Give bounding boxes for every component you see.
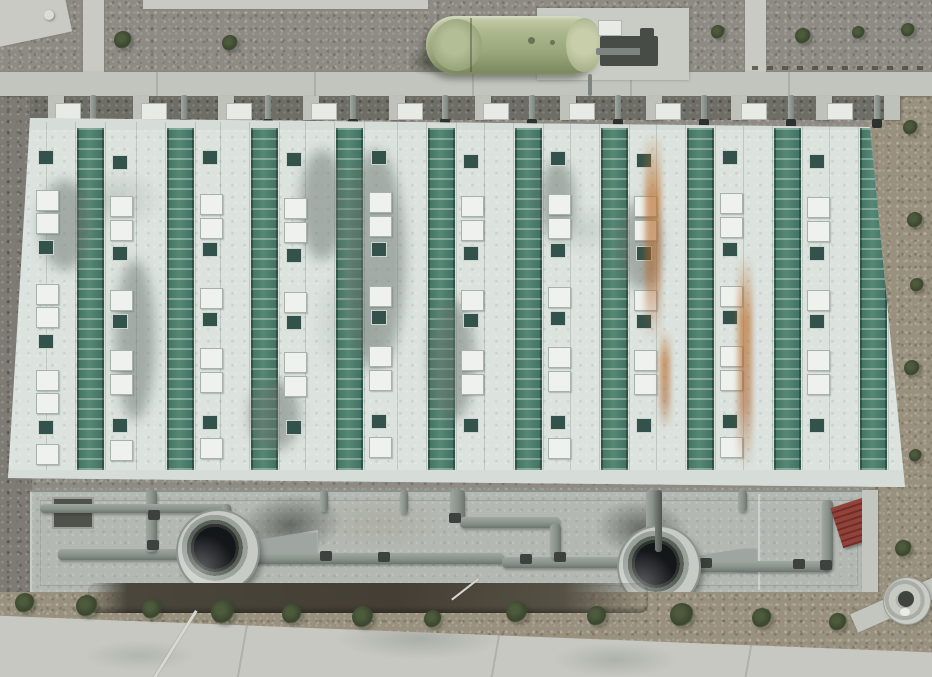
roof-vent [38,334,54,349]
roof-skylight [807,350,830,371]
pipe-joint [820,560,832,570]
equipment-box [598,20,622,36]
roof-skylight [200,348,223,369]
roof-skylight [36,370,59,391]
roof-vent [112,246,128,261]
shrub [910,278,924,292]
roof-skylight [36,307,59,328]
roof-vent [371,310,387,325]
roof-vent [371,242,387,257]
roof-vent [463,313,479,328]
manhole [884,578,930,624]
roof-green-stripe [687,128,714,474]
stone [44,10,54,20]
roof-vent [286,315,302,330]
corner-pad-path [0,0,72,48]
roof-vent [371,150,387,165]
tank-nozzle [550,40,555,45]
shrub [76,595,98,617]
roof-skylight [548,371,571,392]
roof-skylight [369,286,392,307]
pipe-joint [320,551,332,561]
roof-vent [38,420,54,435]
equipment-drop-pipe [588,74,592,96]
shrub [211,600,235,624]
roof-panel-seam [165,122,166,484]
shrub [909,449,922,462]
rooftop-panel [311,103,337,120]
roof-panel-seam [685,122,686,484]
roof-vent [722,242,738,257]
roof-vent [112,314,128,329]
tank-seam [470,18,472,72]
roof-skylight [548,347,571,368]
roof-green-stripe [515,128,542,474]
rooftop-panel [483,103,509,120]
roof-panel-seam [858,122,859,484]
roof-panel-seam [802,122,803,484]
roof-skylight [110,220,133,241]
rooftop-panel [827,103,853,120]
shrub [903,120,918,135]
shrub [795,28,811,44]
roof-skylight [461,290,484,311]
shrub [752,608,772,628]
roof-panel-seam [629,122,630,484]
roof-panel-seam [105,122,106,484]
roof-green-stripe [601,128,628,474]
roof-green-stripe [774,128,801,474]
walkway-pillar [884,96,900,120]
fan-over-pipe [655,490,662,552]
roof-vent [463,246,479,261]
pipe-segment [320,490,328,512]
roof-green-stripe [77,128,104,474]
roof-vent [809,314,825,329]
shrub [711,25,725,39]
roof-skylight [110,350,133,371]
shrub [587,606,607,626]
pipe-joint [148,510,160,520]
roof-panel-seam [75,122,76,484]
roof-skylight [200,288,223,309]
pipe-segment [738,490,747,512]
rooftop-panel [569,103,595,120]
roof-skylight [548,218,571,239]
fence-line [752,66,932,70]
pipe-joint [147,540,159,550]
vertical-path-left [83,0,104,76]
roof-skylight [369,437,392,458]
roof-vent [550,151,566,166]
pipe-elbow [872,119,882,128]
roof-skylight [284,292,307,313]
roof-skylight [461,196,484,217]
roof-vent [202,150,218,165]
roof-vent [286,248,302,263]
roof-skylight [369,370,392,391]
shrub [424,610,442,628]
roof-vent [550,243,566,258]
roof-skylight [200,372,223,393]
rooftop-panel [397,103,423,120]
shrub [904,360,920,376]
rooftop-panel [741,103,767,120]
roof-green-stripe [167,128,194,474]
roof-skylight [369,346,392,367]
roof-eave-bottom [8,470,905,490]
roof-vent [809,418,825,433]
shrub [852,26,865,39]
roof-vent [809,246,825,261]
tank-nozzle [528,37,535,44]
roof-panel-seam [249,122,250,484]
shrub [901,23,915,37]
rust-stain [645,132,661,342]
roof-vent [202,242,218,257]
tank-end-right [566,18,602,72]
shrub [352,606,374,628]
roof-panel-seam [599,122,600,484]
roof-stain [115,260,155,420]
roof-skylight [200,438,223,459]
roof-skylight [807,197,830,218]
roof-vent [371,414,387,429]
shrub [907,212,923,228]
vertical-path-right [745,0,766,76]
roof-skylight [110,196,133,217]
rooftop-panel [655,103,681,120]
roof-vent [722,310,738,325]
pipe-segment [695,561,830,572]
walkway-path [0,72,932,96]
pipe-segment [460,517,560,528]
roof-vent [38,240,54,255]
apron-seam [758,494,760,590]
roof-surface [8,118,905,490]
roof-skylight [548,194,571,215]
pipe-joint [449,513,461,523]
shrub [282,604,302,624]
roof-skylight [36,190,59,211]
roof-skylight [110,290,133,311]
roof-skylight [284,352,307,373]
pipe-joint [554,552,566,562]
roof-vent [463,418,479,433]
shrub [829,613,847,631]
roof-skylight [807,221,830,242]
roof-vent [722,150,738,165]
roof-panel-seam [426,122,427,484]
roof-skylight [720,217,743,238]
roof-vent [286,420,302,435]
roof-skylight [200,218,223,239]
shrub [895,540,912,557]
shrub [222,35,238,51]
roof-vent [809,154,825,169]
roof-vent [112,155,128,170]
roof-skylight [36,213,59,234]
roof-skylight [461,220,484,241]
roof-vent [112,418,128,433]
roof-skylight [369,192,392,213]
roof-skylight [200,194,223,215]
roof-vent [286,152,302,167]
rooftop-panel [141,103,167,120]
manhole-hole [898,591,914,607]
roof-skylight [36,444,59,465]
roof-skylight [284,198,307,219]
aerial-photo [0,0,932,677]
shrub [142,599,162,619]
roof-skylight [807,374,830,395]
fan-unit-left [178,511,258,591]
roof-vent [38,150,54,165]
roof-vent [463,154,479,169]
roof-skylight [461,374,484,395]
roof-skylight [36,393,59,414]
rooftop-panel [226,103,252,120]
roof-skylight [634,350,657,371]
rooftop-panel [55,103,81,120]
roof-skylight [548,438,571,459]
roof-skylight [284,222,307,243]
pipe-segment [40,504,230,513]
roof-vent [722,414,738,429]
apron-notch [52,497,94,529]
shrub [15,593,35,613]
shrub [670,603,694,627]
roof-skylight [461,350,484,371]
roof-skylight [634,374,657,395]
manhole-highlight [900,608,910,616]
roof-skylight [369,216,392,237]
pipe-segment [400,490,408,514]
pipe-joint [520,554,532,564]
roof-panel-seam [484,122,485,482]
roof-vent [202,312,218,327]
roof-vent [202,415,218,430]
roof-skylight [807,290,830,311]
roof-skylight [110,440,133,461]
pipe-joint [793,559,805,569]
roof-vent [636,418,652,433]
roof-vent [550,415,566,430]
tank-end-left [432,19,482,71]
roof-panel-seam [772,122,773,484]
roof-skylight [36,284,59,305]
pipe-joint [700,558,712,568]
pipe-joint [378,552,390,562]
rust-stain [660,330,670,430]
top-edge-path [143,0,428,9]
shrub [114,31,132,49]
roof-stain [345,150,405,370]
roof-skylight [284,376,307,397]
shrub [506,601,528,623]
roof-vent [550,311,566,326]
roof-skylight [110,374,133,395]
roof-panel-seam [513,122,514,484]
rust-stain [738,255,752,470]
roof-panel-seam [715,122,716,484]
roof-panel-seam [195,122,196,484]
tank-equipment [640,28,654,64]
roof-skylight [720,193,743,214]
roof-skylight [548,287,571,308]
